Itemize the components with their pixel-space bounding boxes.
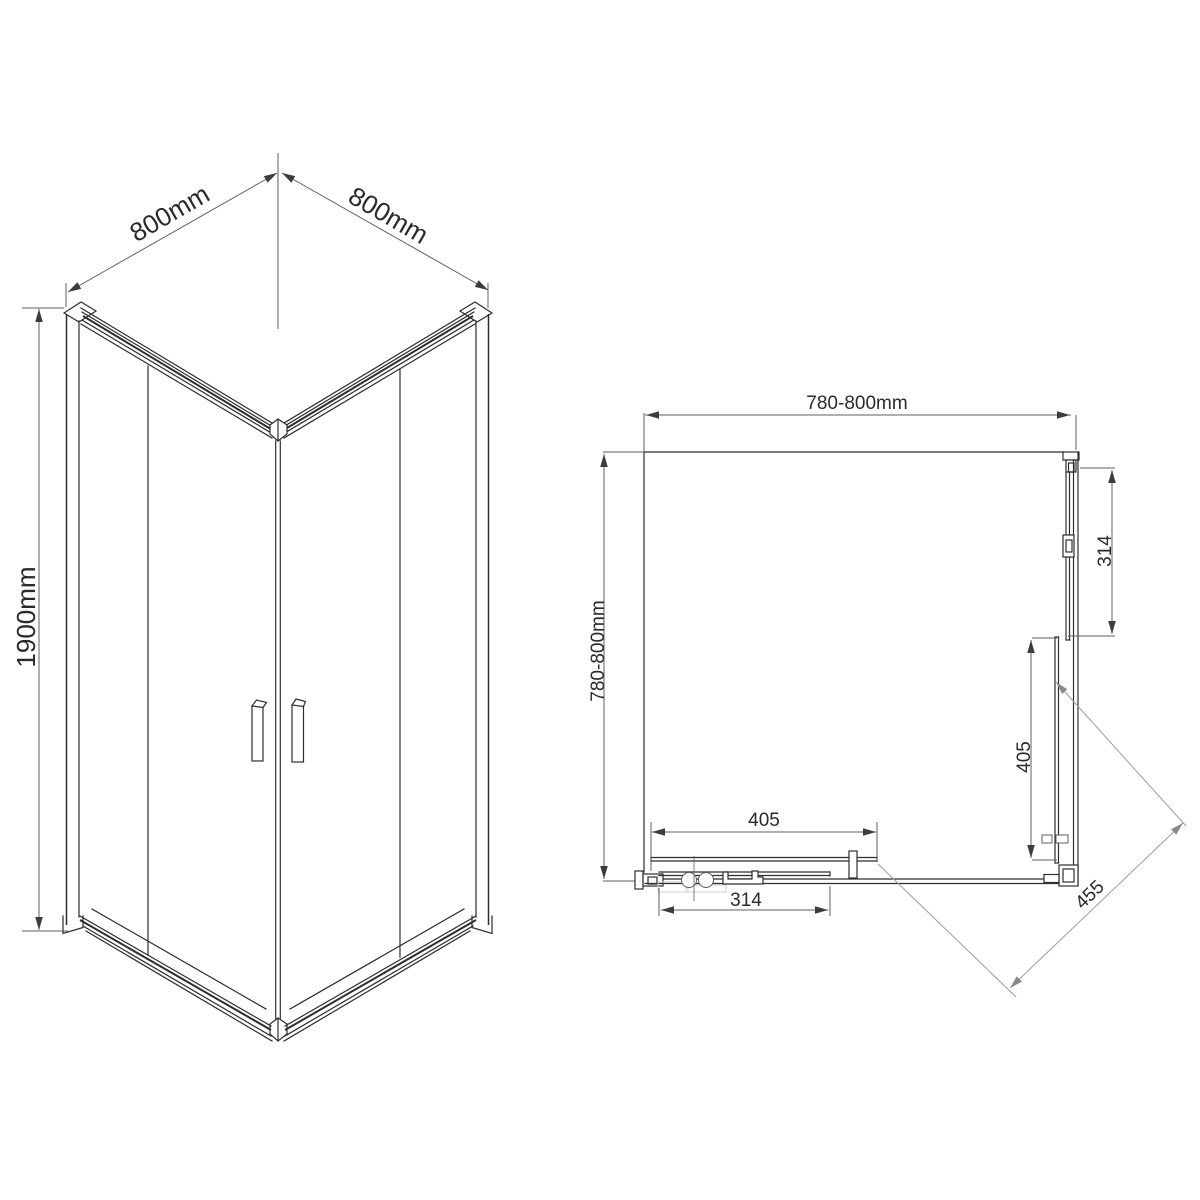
shower-enclosure-drawing: 1900mm 800mm 800mm — [0, 0, 1200, 1200]
door-handle-left — [252, 700, 267, 761]
dim-plan-left-label: 780-800mm — [588, 600, 609, 701]
dim-door-side-label: 405 — [1014, 741, 1035, 773]
dim-height: 1900mm — [11, 308, 68, 931]
door-handle-right — [292, 699, 306, 762]
dim-fixed-panel-side: 314 — [1068, 468, 1116, 636]
dim-width-left: 800mm — [66, 153, 278, 329]
dim-fixed-panel-bottom: 314 — [659, 886, 830, 916]
isometric-view: 1900mm 800mm 800mm — [11, 153, 492, 1041]
dim-width-right: 800mm — [282, 173, 488, 308]
dim-plan-top: 780-800mm — [644, 393, 1076, 452]
dim-fixed-panel-bottom-label: 314 — [730, 890, 762, 911]
top-rail-left — [81, 308, 274, 438]
left-wall-profile — [63, 302, 96, 934]
plan-view: 780-800mm 780-800mm — [588, 393, 1186, 997]
dim-fixed-panel-side-label: 314 — [1095, 535, 1116, 567]
door-handle-plan — [849, 851, 857, 878]
dim-door-bottom: 405 — [651, 810, 877, 871]
dim-door-bottom-label: 405 — [748, 810, 780, 831]
bottom-rail-left — [80, 909, 272, 1041]
right-wall-profile — [460, 302, 492, 934]
corner-post — [270, 419, 287, 1041]
dim-height-label: 1900mm — [11, 566, 41, 667]
right-glass-assembly — [1042, 452, 1079, 884]
dim-plan-top-label: 780-800mm — [806, 393, 907, 414]
bottom-glass-assembly — [635, 851, 1078, 901]
dim-diagonal-entry: 455 — [878, 682, 1186, 997]
bottom-rail-right — [284, 909, 476, 1041]
dim-door-side: 405 — [1014, 638, 1057, 860]
top-rail-right — [282, 308, 475, 438]
technical-drawing: 1900mm 800mm 800mm — [0, 0, 1200, 1200]
dim-width-left-label: 800mm — [124, 178, 214, 247]
corner-bracket-plan — [1059, 865, 1078, 886]
dim-plan-left: 780-800mm — [588, 452, 644, 881]
